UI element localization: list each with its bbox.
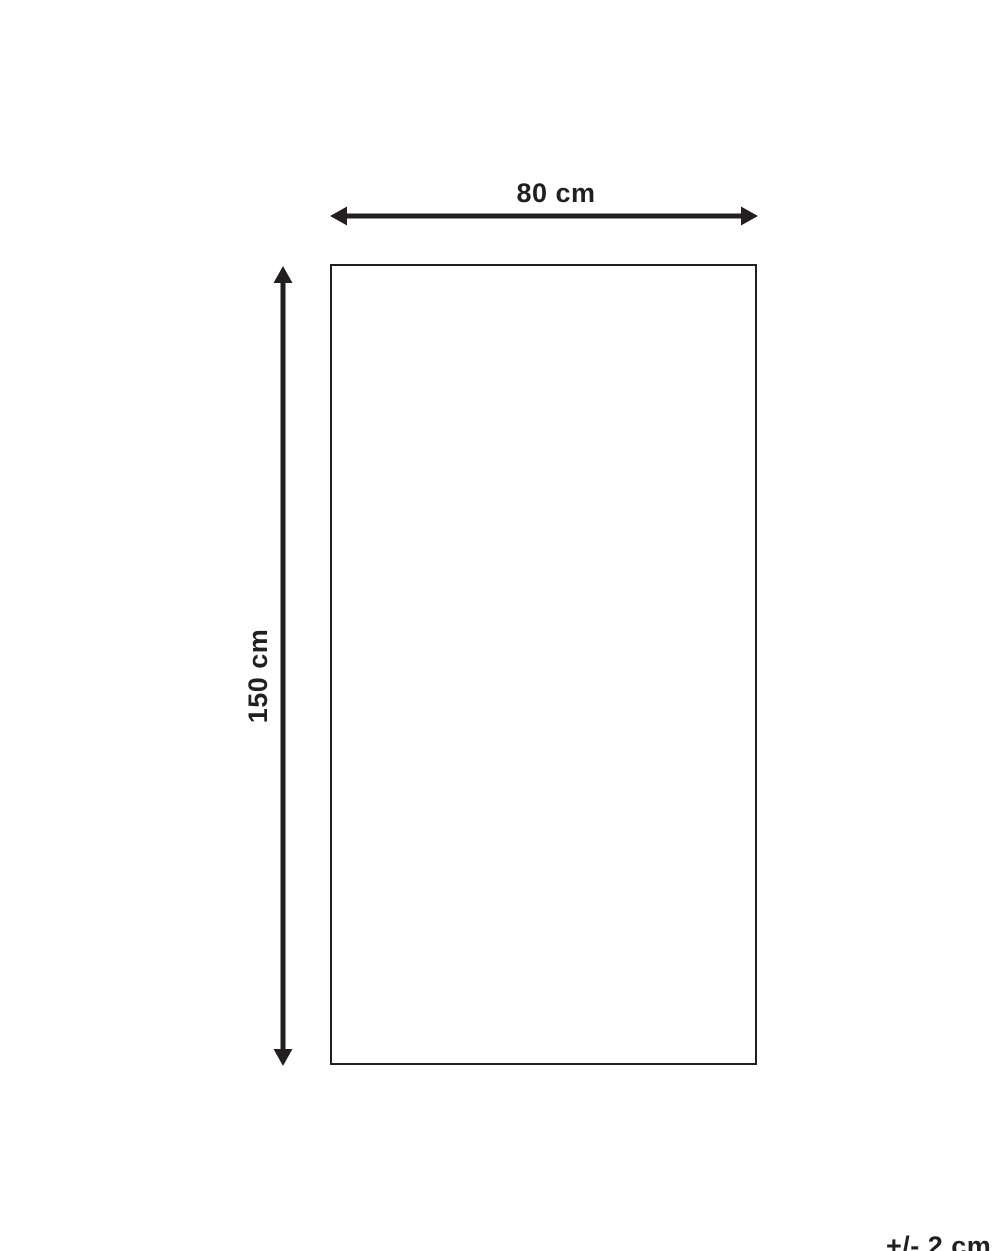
dimension-diagram: 80 cm 150 cm +/- 2 cm: [0, 0, 1000, 1251]
arrowhead-right-icon: [741, 207, 758, 226]
product-outline-rectangle: [330, 264, 757, 1065]
width-dimension-label: 80 cm: [516, 178, 595, 208]
arrowhead-up-icon: [274, 266, 293, 283]
arrowhead-left-icon: [330, 207, 347, 226]
tolerance-label: +/- 2 cm: [886, 1231, 991, 1251]
height-dimension-label: 150 cm: [243, 629, 273, 724]
arrowhead-down-icon: [274, 1049, 293, 1066]
